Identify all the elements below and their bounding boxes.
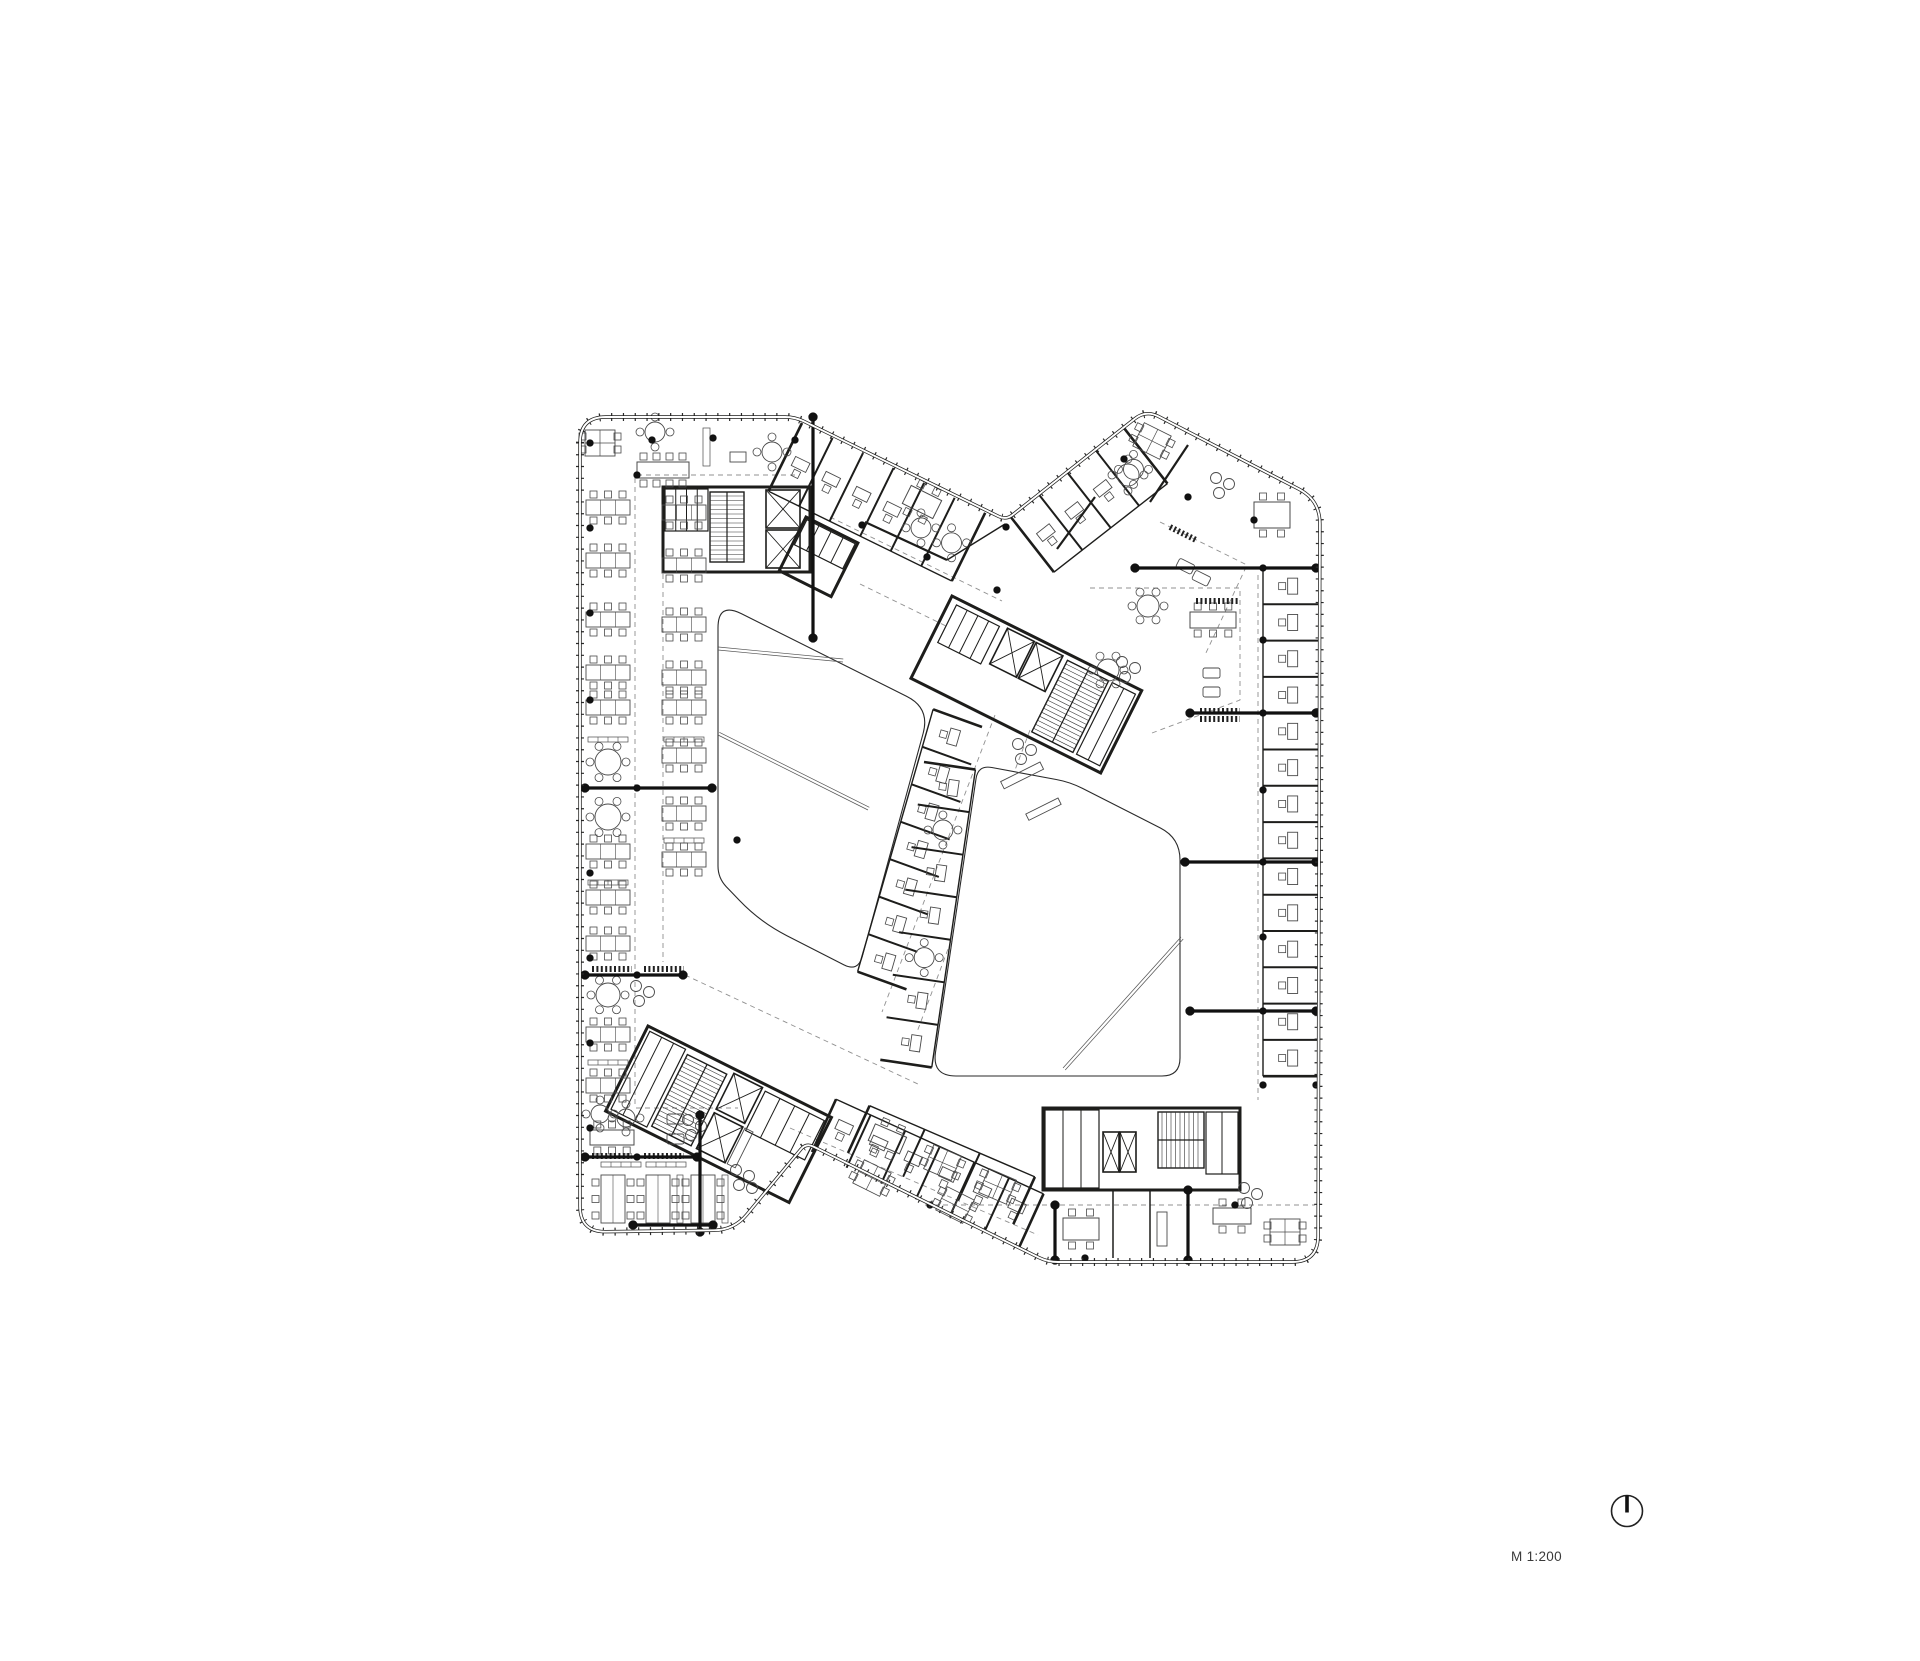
floor-plan-drawing [0,0,1920,1661]
desk-cluster [1264,1219,1306,1245]
desk-cluster [579,430,621,456]
scale-label: M 1:200 [1511,1549,1562,1564]
north-arrow [1612,1496,1643,1527]
floor-plan-page: M 1:200 [0,0,1920,1661]
